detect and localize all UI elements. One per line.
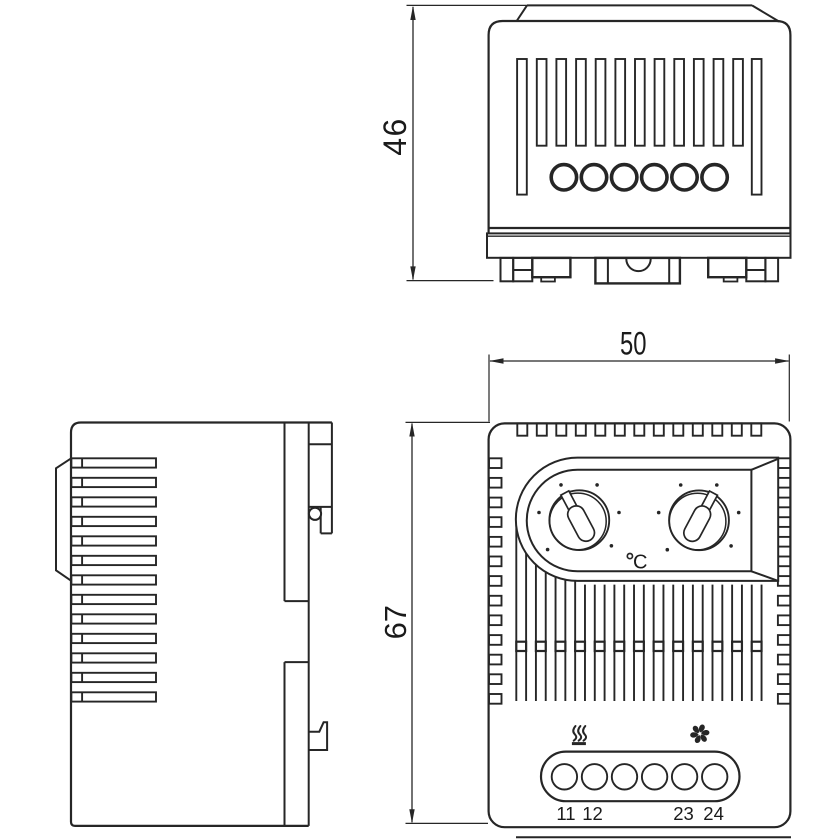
svg-text:C: C <box>633 552 647 574</box>
svg-text:67: 67 <box>378 605 413 639</box>
svg-text:11: 11 <box>556 803 575 824</box>
svg-text:12: 12 <box>582 803 603 824</box>
svg-text:23: 23 <box>673 803 694 824</box>
svg-text:46: 46 <box>377 117 413 156</box>
svg-text:24: 24 <box>703 803 724 824</box>
svg-text:50: 50 <box>620 326 647 362</box>
